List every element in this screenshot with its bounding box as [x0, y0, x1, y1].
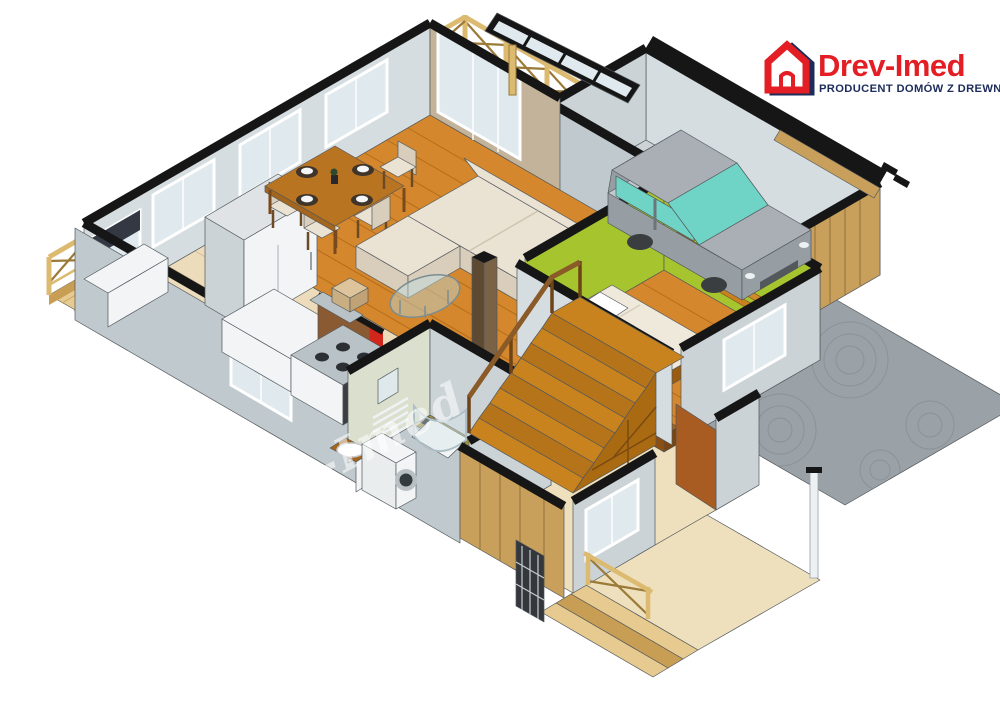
isometric-house-scene: Drev-Imed Drev-Imed PRODUCENT DOMÓW Z DR…	[0, 0, 1000, 724]
floorplan-render: Drev-Imed Drev-Imed PRODUCENT DOMÓW Z DR…	[0, 0, 1000, 724]
car-wheel	[701, 277, 727, 293]
vase	[331, 169, 339, 185]
headlight	[745, 273, 755, 279]
logo: Drev-Imed PRODUCENT DOMÓW Z DREWNA	[768, 45, 1000, 95]
pergola-post	[509, 45, 516, 95]
logo-brand-text: Drev-Imed	[818, 48, 965, 83]
logo-tagline-text: PRODUCENT DOMÓW Z DREWNA	[819, 82, 1000, 95]
headlight	[799, 242, 809, 248]
car-wheel	[627, 234, 653, 250]
